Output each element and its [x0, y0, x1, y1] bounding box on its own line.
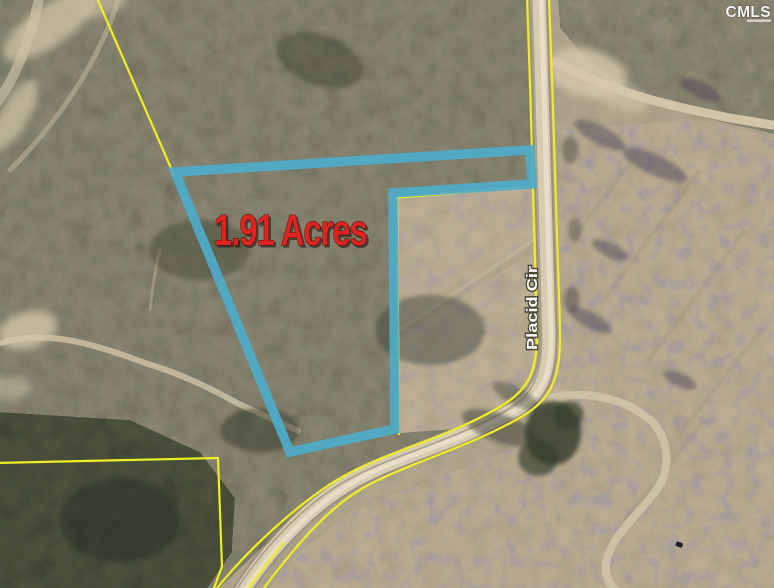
aerial-map: 1.91 Acres Placid Cir CMLS: [0, 0, 774, 588]
map-canvas: 1.91 Acres Placid Cir CMLS: [0, 0, 774, 588]
mls-watermark: CMLS: [725, 4, 771, 22]
photo-grain: [0, 0, 774, 588]
mls-watermark-tagline: [747, 20, 771, 22]
acreage-label: 1.91 Acres: [214, 206, 367, 255]
road-name-label: Placid Cir: [525, 266, 541, 350]
mls-watermark-text: CMLS: [725, 4, 771, 21]
